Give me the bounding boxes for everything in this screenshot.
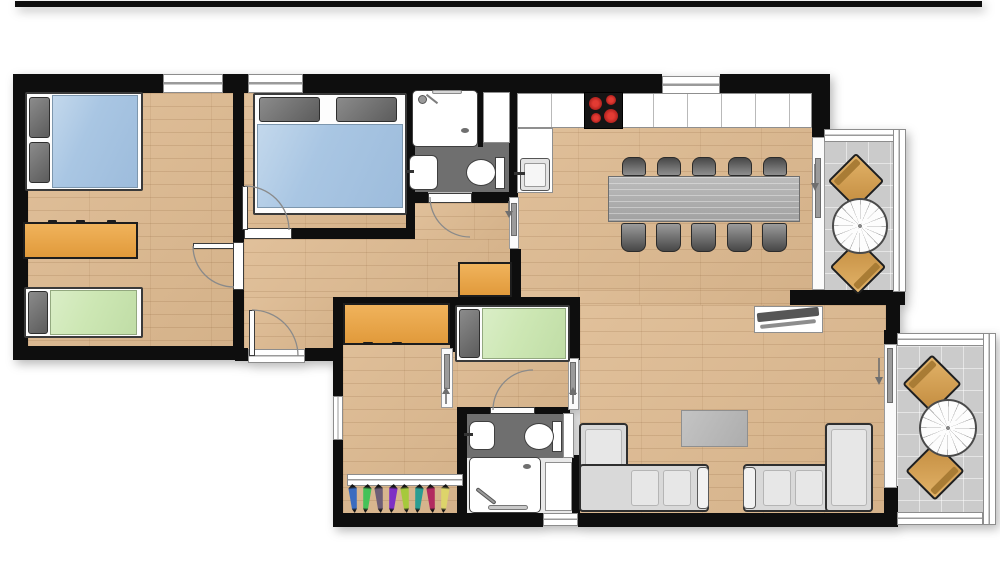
wardrobe-knob [392,342,402,345]
wall-bathroom2-top-left [457,407,490,414]
single-bed-2-pillow [459,309,480,358]
sideboard-hallway [458,262,512,297]
balcony-lower-rail-right [983,333,996,525]
dining-chair [621,223,646,252]
ski-6 [412,484,425,514]
ski-7 [425,484,438,514]
door-leaf-bathroom1 [428,193,472,203]
floor-plan-screenshot [0,0,1000,564]
door-leaf-bedroom2 [242,186,248,230]
floor-plan [0,0,1000,564]
door-leaf-bathroom2 [490,407,535,414]
double-bed-1-pillow-bottom [29,142,50,183]
sofa-left-seat [579,464,709,512]
wardrobe-studio [343,303,450,345]
dining-table [608,176,800,222]
wall-bedroom1-right-lower [233,290,244,348]
balcony-lower-table [919,399,977,457]
window-bathroom2 [543,513,578,526]
ski-3 [373,484,386,514]
kitchen-counter-top [517,93,812,128]
desk-1-knob [107,220,116,223]
window-kitchen [662,76,720,94]
door-leaf-entrance [249,310,255,356]
dining-chair [763,157,787,176]
window-studio-left [333,396,343,440]
image-top-border [15,1,982,7]
shower-2-drain [523,464,531,469]
double-bed-2-mattress [257,124,403,208]
balcony-lower-rail-top [897,333,987,346]
wall-living-right-lower [884,486,898,518]
single-bed-1-mattress [50,290,137,335]
double-bed-1-pillow-top [29,97,50,138]
desk-1-knob [76,220,85,223]
double-bed-2-pillow-left [259,97,320,122]
window-bedroom2 [248,74,303,93]
entrance-threshold [248,349,305,363]
hallway-floor-right [413,203,510,239]
kitchen-sink-faucet [514,172,525,175]
desk-bedroom-1 [23,222,138,259]
dining-chair [656,223,681,252]
door-jamb-bedroom2 [244,228,292,239]
sliding-door-hall-kitchen-leaf [511,203,517,236]
sofa-right-chaise [825,423,873,512]
dining-chair [727,223,752,252]
balcony-upper-rail-right [893,129,906,292]
burner [606,95,616,105]
toilet-1-tank [495,157,505,189]
hallway-floor-entrance [244,297,335,349]
dining-chair [622,157,646,176]
sliding-door-balcony-lower-leaf [887,348,893,403]
dining-chair [762,223,787,252]
ski-5 [399,484,412,514]
shower-1-head-icon [418,95,427,104]
sofa-left-armrest [697,467,709,509]
wall-studio-left-upper [333,297,343,398]
ski-2 [360,484,373,514]
shower-1-drain [461,128,469,133]
toilet-1-bowl [466,159,496,186]
washbasin-1-faucet [405,170,414,173]
bathroom-1-cabinet [483,92,510,143]
desk-1-knob [48,220,57,223]
balcony-lower-rail-bottom [897,512,983,525]
wall-entrance-right [305,348,335,361]
burner [591,113,601,123]
kitchen-sink-basin [524,163,546,187]
wall-top-1 [13,74,163,93]
cooktop [584,92,623,129]
bathroom-2-cabinet [545,462,572,511]
ski-4 [386,484,399,514]
ski-8 [438,484,451,514]
washbasin-2-faucet [464,433,473,436]
wall-bathroom1-bottom-left [406,192,428,203]
sliding-door-bednook-living-leaf [570,362,576,395]
wall-step-horizontal [790,290,905,305]
door-jamb-bedroom1 [233,242,244,290]
door-leaf-bedroom1 [193,243,234,249]
burner [589,97,602,110]
wall-bottom-1 [333,513,543,527]
window-bedroom1 [163,74,223,93]
shower-2-towel-bar [488,505,528,510]
single-bed-1-pillow [28,291,48,334]
balcony-upper-table [832,198,888,254]
dining-chair [692,157,716,176]
sliding-door-balcony-upper-leaf [815,158,821,218]
wall-bottom-bedroom1 [13,346,235,360]
sliding-door-corridor-bednook-leaf [444,354,450,389]
toilet-2-bowl [524,423,554,450]
coffee-table [681,410,748,447]
single-bed-2-mattress [482,308,566,359]
bathroom-2-panel [563,413,574,458]
double-bed-2-pillow-right [336,97,397,122]
shower-1-towel-bar [432,90,462,94]
double-bed-1-mattress [52,95,138,188]
dining-chair [728,157,752,176]
ski-rack [347,484,457,514]
wall-bottom-2 [578,513,898,527]
wall-bedroom2-bottom-right [292,228,407,239]
wardrobe-knob [363,342,373,345]
wall-entrance-left [235,348,248,361]
sofa-right-armrest [743,467,756,509]
burner [604,109,618,123]
wall-bathroom2-left [457,407,467,513]
dining-chair [691,223,716,252]
dining-chair [657,157,681,176]
ski-1 [347,484,360,514]
